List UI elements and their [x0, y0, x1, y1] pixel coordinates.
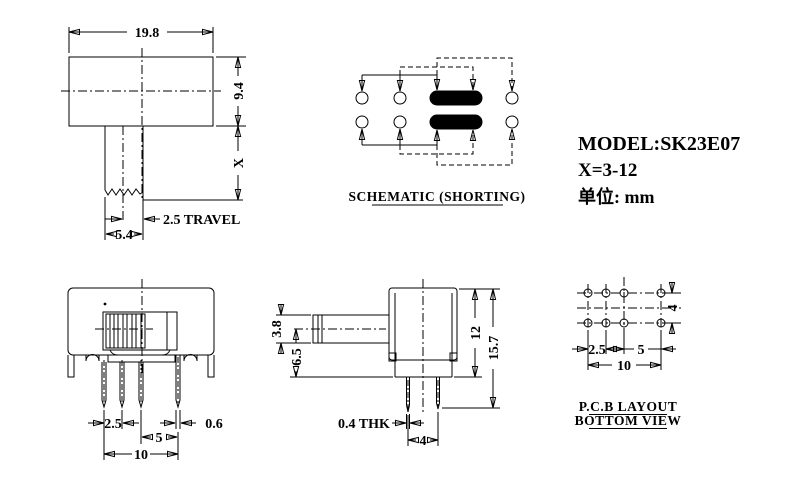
drawing-canvas: 19.8 9.4 X 2.5 TRAVEL 5.4 [0, 0, 800, 480]
dim-body-height: 12 [469, 326, 484, 340]
knurled-knob [106, 314, 145, 348]
schematic-label: SCHEMATIC (SHORTING) [349, 189, 526, 204]
front-view-body [61, 48, 243, 222]
dim-total-height: 15.7 [487, 336, 502, 361]
dim-pin-width: 0.6 [205, 417, 223, 432]
dim-pin-spacing: 4 [420, 434, 427, 449]
schematic-view: SCHEMATIC (SHORTING) [349, 58, 526, 205]
pin-view-dimensions: 2.5 0.6 5 10 [88, 410, 223, 463]
dim-pin-overall: 10 [134, 448, 148, 463]
side-view-body [294, 279, 457, 412]
dim-pin-thickness: 0.4 THK [338, 417, 390, 432]
bracket-left [68, 355, 74, 377]
dim-travel: 2.5 TRAVEL [163, 213, 240, 228]
front-view: 19.8 9.4 X 2.5 TRAVEL 5.4 [61, 26, 247, 243]
dim-center-to-base: 6.5 [290, 348, 305, 366]
bracket-right [208, 355, 214, 377]
drawing-sheet: 19.8 9.4 X 2.5 TRAVEL 5.4 [0, 0, 800, 480]
pcb-layout-view: 4 2.5 5 10 P.C.B LAYOUT BOTTOM VIEW [572, 277, 681, 429]
model-number: MODEL:SK23E07 [578, 133, 740, 155]
dim-stem-length: X [232, 158, 247, 168]
dim-pitch-small: 2.5 [588, 343, 606, 358]
dim-overall: 10 [617, 359, 631, 374]
pcb-label-line1: P.C.B LAYOUT [579, 399, 677, 414]
break-line [105, 189, 143, 195]
shorting-contact-top [430, 91, 482, 105]
side-view-dimensions: 3.8 6.5 12 15.7 0.4 THK 4 [270, 289, 502, 449]
dim-knob-height: 3.8 [270, 320, 285, 338]
schematic-terminals [356, 91, 518, 129]
unit-note: 单位: mm [578, 186, 654, 207]
index-dot [104, 303, 107, 306]
side-view: 3.8 6.5 12 15.7 0.4 THK 4 [270, 279, 502, 449]
dim-body-height: 9.4 [232, 82, 247, 100]
pin-view: 2.5 0.6 5 10 [68, 279, 223, 463]
dim-pin-pitch-large: 5 [156, 431, 163, 446]
front-view-dimensions: 19.8 9.4 X 2.5 TRAVEL 5.4 [69, 26, 247, 243]
dim-body-width: 19.8 [135, 26, 160, 41]
pin-view-pins [102, 355, 180, 407]
title-block: MODEL:SK23E07 X=3-12 单位: mm [578, 133, 740, 207]
schematic-connections [362, 58, 512, 165]
shorting-contact-bottom [430, 115, 482, 129]
dim-pitch-large: 5 [638, 343, 645, 358]
dim-stem-width: 5.4 [115, 228, 133, 243]
dim-pin-pitch-small: 2.5 [104, 417, 122, 432]
pcb-labels: P.C.B LAYOUT BOTTOM VIEW [575, 399, 682, 429]
dim-row-spacing: 4 [666, 305, 681, 312]
pcb-label-line2: BOTTOM VIEW [575, 413, 682, 428]
x-range: X=3-12 [578, 160, 637, 181]
